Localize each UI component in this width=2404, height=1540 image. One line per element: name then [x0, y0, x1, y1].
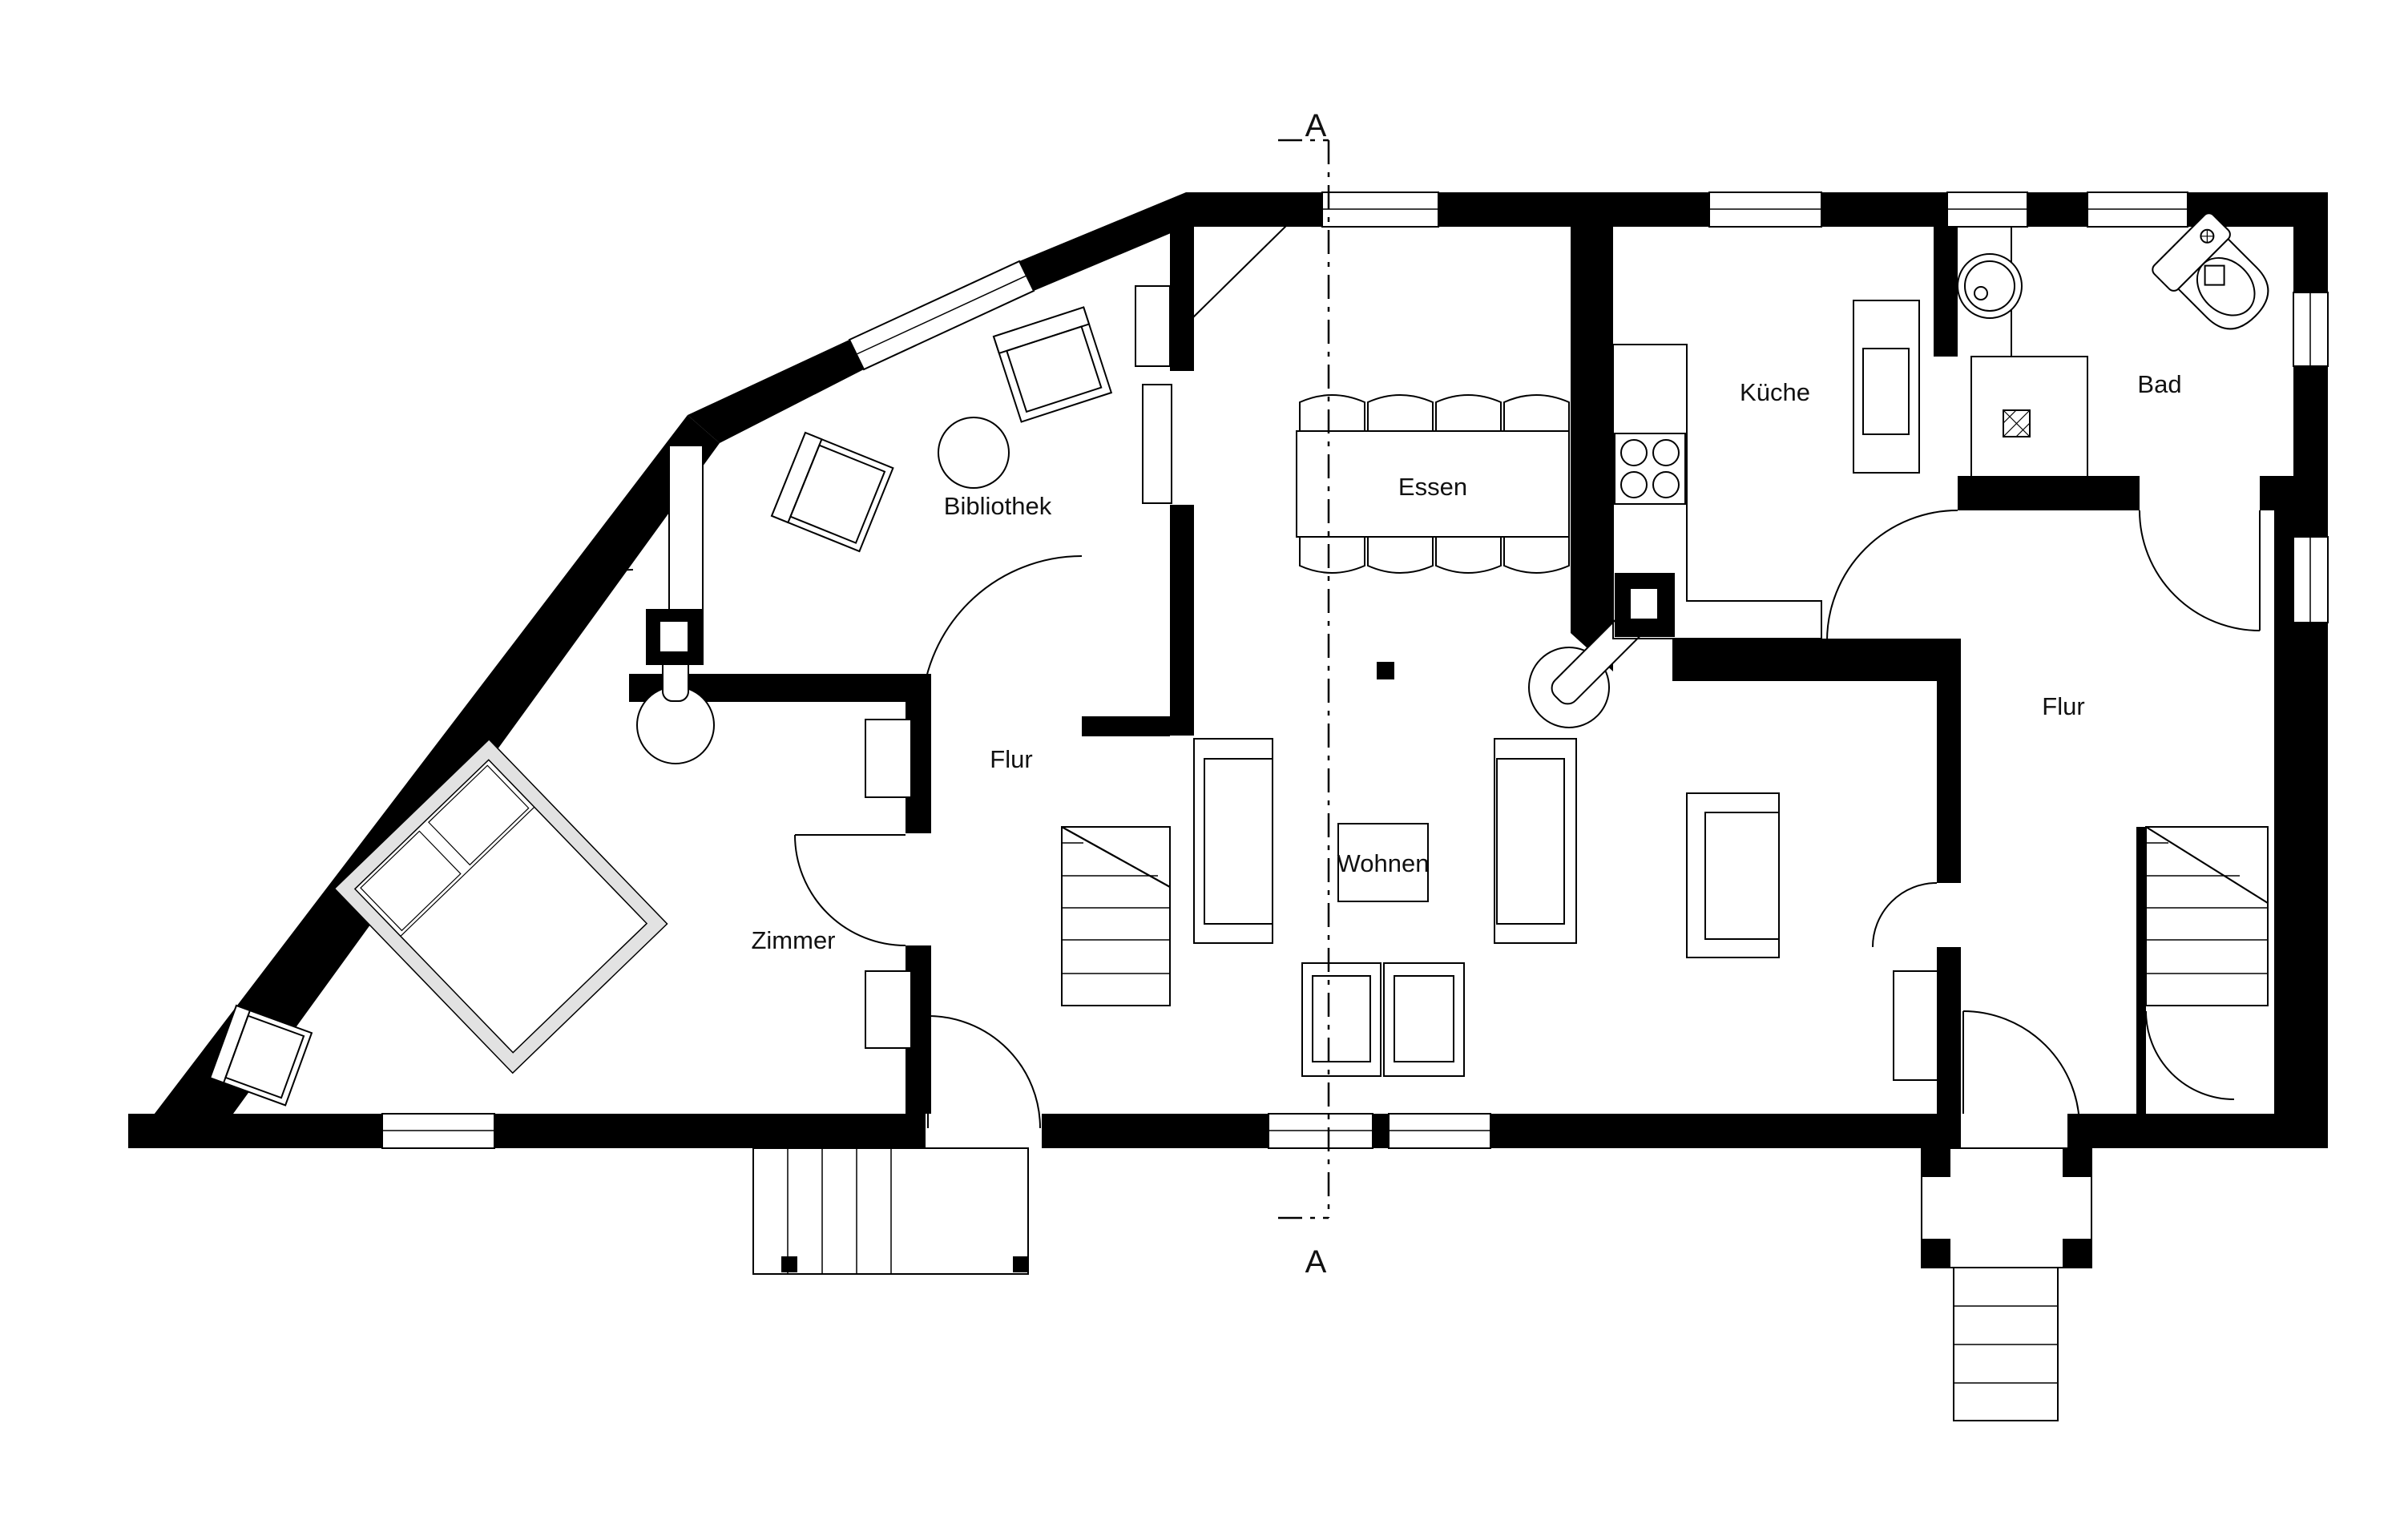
wall-top [2027, 192, 2087, 227]
wall-top [1821, 192, 1947, 227]
window-right-1 [2293, 292, 2328, 366]
shower [1971, 357, 2087, 494]
wall-right [2293, 192, 2328, 292]
staircase-flur-left [1062, 827, 1170, 1006]
porch-middle [753, 1148, 1029, 1274]
sofa-left [1194, 739, 1273, 943]
section-label-top: A [1305, 108, 1327, 143]
room-label-zimmer: Zimmer [751, 926, 835, 954]
chimney-flue [1631, 589, 1657, 619]
window-top-3 [1947, 192, 2027, 227]
wall-bottom [1042, 1114, 1269, 1148]
wall-bibliothek-flur [1082, 716, 1170, 736]
wall-bad-bottom-left [1958, 476, 2140, 510]
bedroom-shelf [865, 720, 911, 797]
wall-essen-kueche [1571, 227, 1613, 633]
dining-chair [1368, 395, 1433, 431]
stair-cut-line [1062, 827, 1170, 887]
wall-flur-right-lining [2274, 476, 2293, 1114]
library-armchair [772, 433, 893, 551]
window-bottom-3 [1389, 1114, 1490, 1148]
porch-post [1922, 1148, 1950, 1177]
room-label-essen: Essen [1398, 473, 1467, 501]
wall-kueche-flur [1672, 639, 1961, 681]
wall-wohnen-flur-upper [1937, 681, 1961, 883]
wall-top [1186, 192, 1322, 227]
sideboard [1687, 793, 1779, 957]
porch-post [781, 1256, 797, 1272]
section-label-bottom: A [1305, 1244, 1327, 1280]
library-shelf [1143, 385, 1172, 503]
window-right-2 [2293, 537, 2328, 623]
chimney-flue [660, 622, 688, 651]
door-flur-left-entry [928, 1016, 1040, 1128]
door-arc-bibliothek [922, 556, 1082, 716]
window-top-1 [1322, 192, 1438, 227]
bedroom-shelf [865, 971, 911, 1048]
wall-kueche-bad [1934, 227, 1958, 357]
wall-diagonal-upper [1019, 192, 1186, 291]
wall-diagonal-lower [128, 415, 720, 1148]
bath-set [1958, 211, 2285, 494]
wall-bottom [1373, 1114, 1389, 1148]
wall-bibliothek-essen-upper [1170, 227, 1194, 371]
door-arc-kueche [1827, 510, 1958, 641]
porch-post [2063, 1148, 2091, 1177]
wall-bottom [494, 1114, 926, 1148]
room-label-bad: Bad [2137, 370, 2181, 398]
washbasin [1958, 254, 2022, 318]
window-bottom-2 [1269, 1114, 1373, 1148]
dining-chair [1300, 537, 1365, 573]
wall-right [2293, 623, 2328, 1148]
window-top-2 [1709, 192, 1821, 227]
door-bad [2140, 510, 2260, 631]
wall-diagonal-upper [688, 340, 864, 443]
wall-right [2293, 366, 2328, 537]
floor-plan-canvas: A A Bibliothek Essen Küche Bad Flur Flur… [0, 0, 2404, 1540]
wall-wohnen-flur-lower [1937, 947, 1961, 1114]
armchair-right [1384, 963, 1464, 1076]
wall-bottom [2067, 1114, 2328, 1148]
dining-chair [1504, 395, 1569, 431]
staircase-flur-right [2146, 827, 2268, 1006]
room-label-wohnen: Wohnen [1337, 849, 1430, 877]
stair-cut-line [2146, 827, 2268, 903]
cooktop [1615, 433, 1685, 504]
wall-bottom [128, 1114, 382, 1148]
wardrobe [1894, 971, 1938, 1080]
porch-right [1922, 1148, 2091, 1421]
wall-top [1438, 192, 1709, 227]
library-round-table [938, 417, 1009, 488]
door-arc-vestibule [2146, 1011, 2234, 1099]
window-top-4 [2087, 192, 2188, 227]
floor-plan-page: A A Bibliothek Essen Küche Bad Flur Flur… [0, 0, 2404, 1540]
armchair-left [1302, 963, 1381, 1076]
toilet [2150, 211, 2285, 345]
hall-ceiling-edge [1192, 220, 1292, 318]
room-label-flur-right: Flur [2042, 692, 2084, 720]
dining-chair [1436, 537, 1501, 573]
library-armchair [994, 308, 1111, 422]
kitchen-sink-unit [1853, 300, 1919, 473]
wall-stair-cheek [2136, 827, 2146, 1114]
room-label-flur-left: Flur [990, 745, 1032, 773]
porch-post [1922, 1239, 1950, 1268]
dining-chair [1368, 537, 1433, 573]
porch-post [2063, 1239, 2091, 1268]
porch-post [1013, 1256, 1029, 1272]
wall-duct-above-stove [669, 445, 703, 611]
wall-bottom [1490, 1114, 1961, 1148]
door-flur-right-entry [1963, 1011, 2079, 1127]
living-set [1194, 739, 1938, 1080]
bed [334, 740, 667, 1073]
column-post [1377, 662, 1394, 679]
dining-chair [1436, 395, 1501, 431]
door-arc-wohnen-flur [1873, 883, 1937, 947]
window-bottom-1 [382, 1114, 494, 1148]
room-label-kueche: Küche [1740, 378, 1810, 406]
dining-chair [1300, 395, 1365, 431]
library-shelf [1135, 286, 1170, 366]
sofa-right [1494, 739, 1576, 943]
wall-bibliothek-essen-lower [1170, 505, 1194, 736]
room-label-bibliothek: Bibliothek [944, 492, 1052, 520]
dining-chair [1504, 537, 1569, 573]
